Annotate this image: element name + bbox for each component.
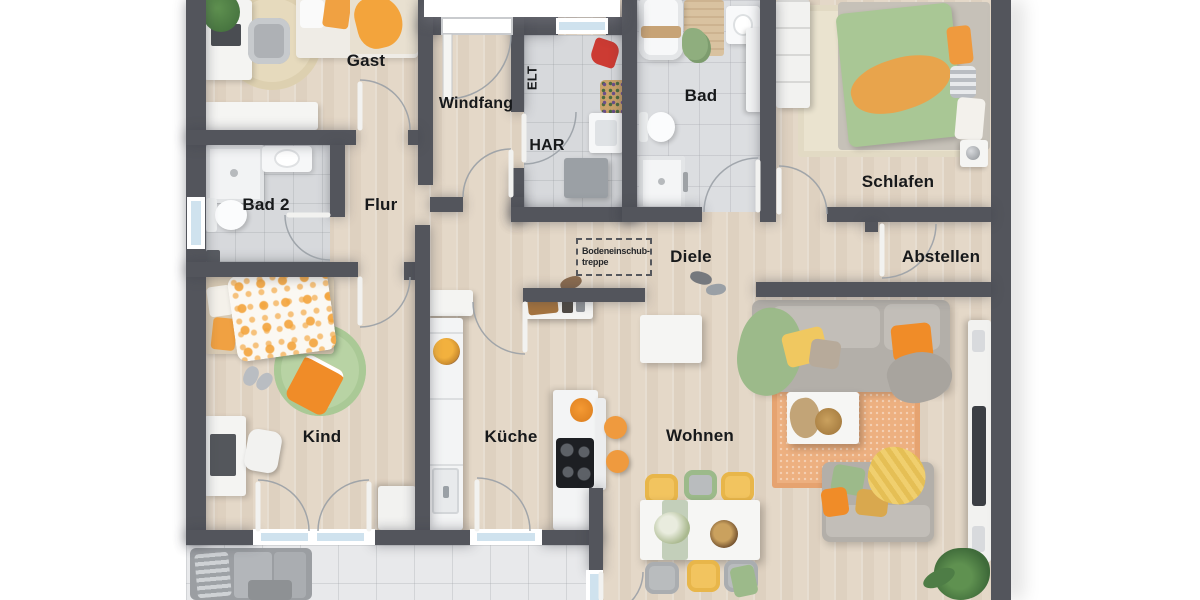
room-label-kueche: Küche <box>485 427 538 447</box>
attic-hatch-line2: treppe <box>582 257 647 268</box>
room-label-gast: Gast <box>347 51 386 71</box>
room-label-kind: Kind <box>303 427 342 447</box>
room-label-har: HAR <box>529 137 564 155</box>
room-label-flur: Flur <box>365 195 398 215</box>
room-label-diele: Diele <box>670 247 712 267</box>
room-label-bad: Bad <box>685 86 718 106</box>
room-label-bad2: Bad 2 <box>242 195 289 215</box>
room-label-wohnen: Wohnen <box>666 426 734 446</box>
labels: Gast Windfang ELT HAR Bad Schlafen Bad 2… <box>0 0 1200 600</box>
attic-hatch-box: Bodeneinschub- treppe <box>576 238 652 276</box>
attic-hatch-line1: Bodeneinschub- <box>582 246 647 257</box>
room-label-windfang: Windfang <box>439 95 513 113</box>
floor-plan: Gast Windfang ELT HAR Bad Schlafen Bad 2… <box>0 0 1200 600</box>
room-label-elt: ELT <box>525 66 540 90</box>
room-label-schlafen: Schlafen <box>862 172 934 192</box>
room-label-abstellen: Abstellen <box>902 247 980 267</box>
